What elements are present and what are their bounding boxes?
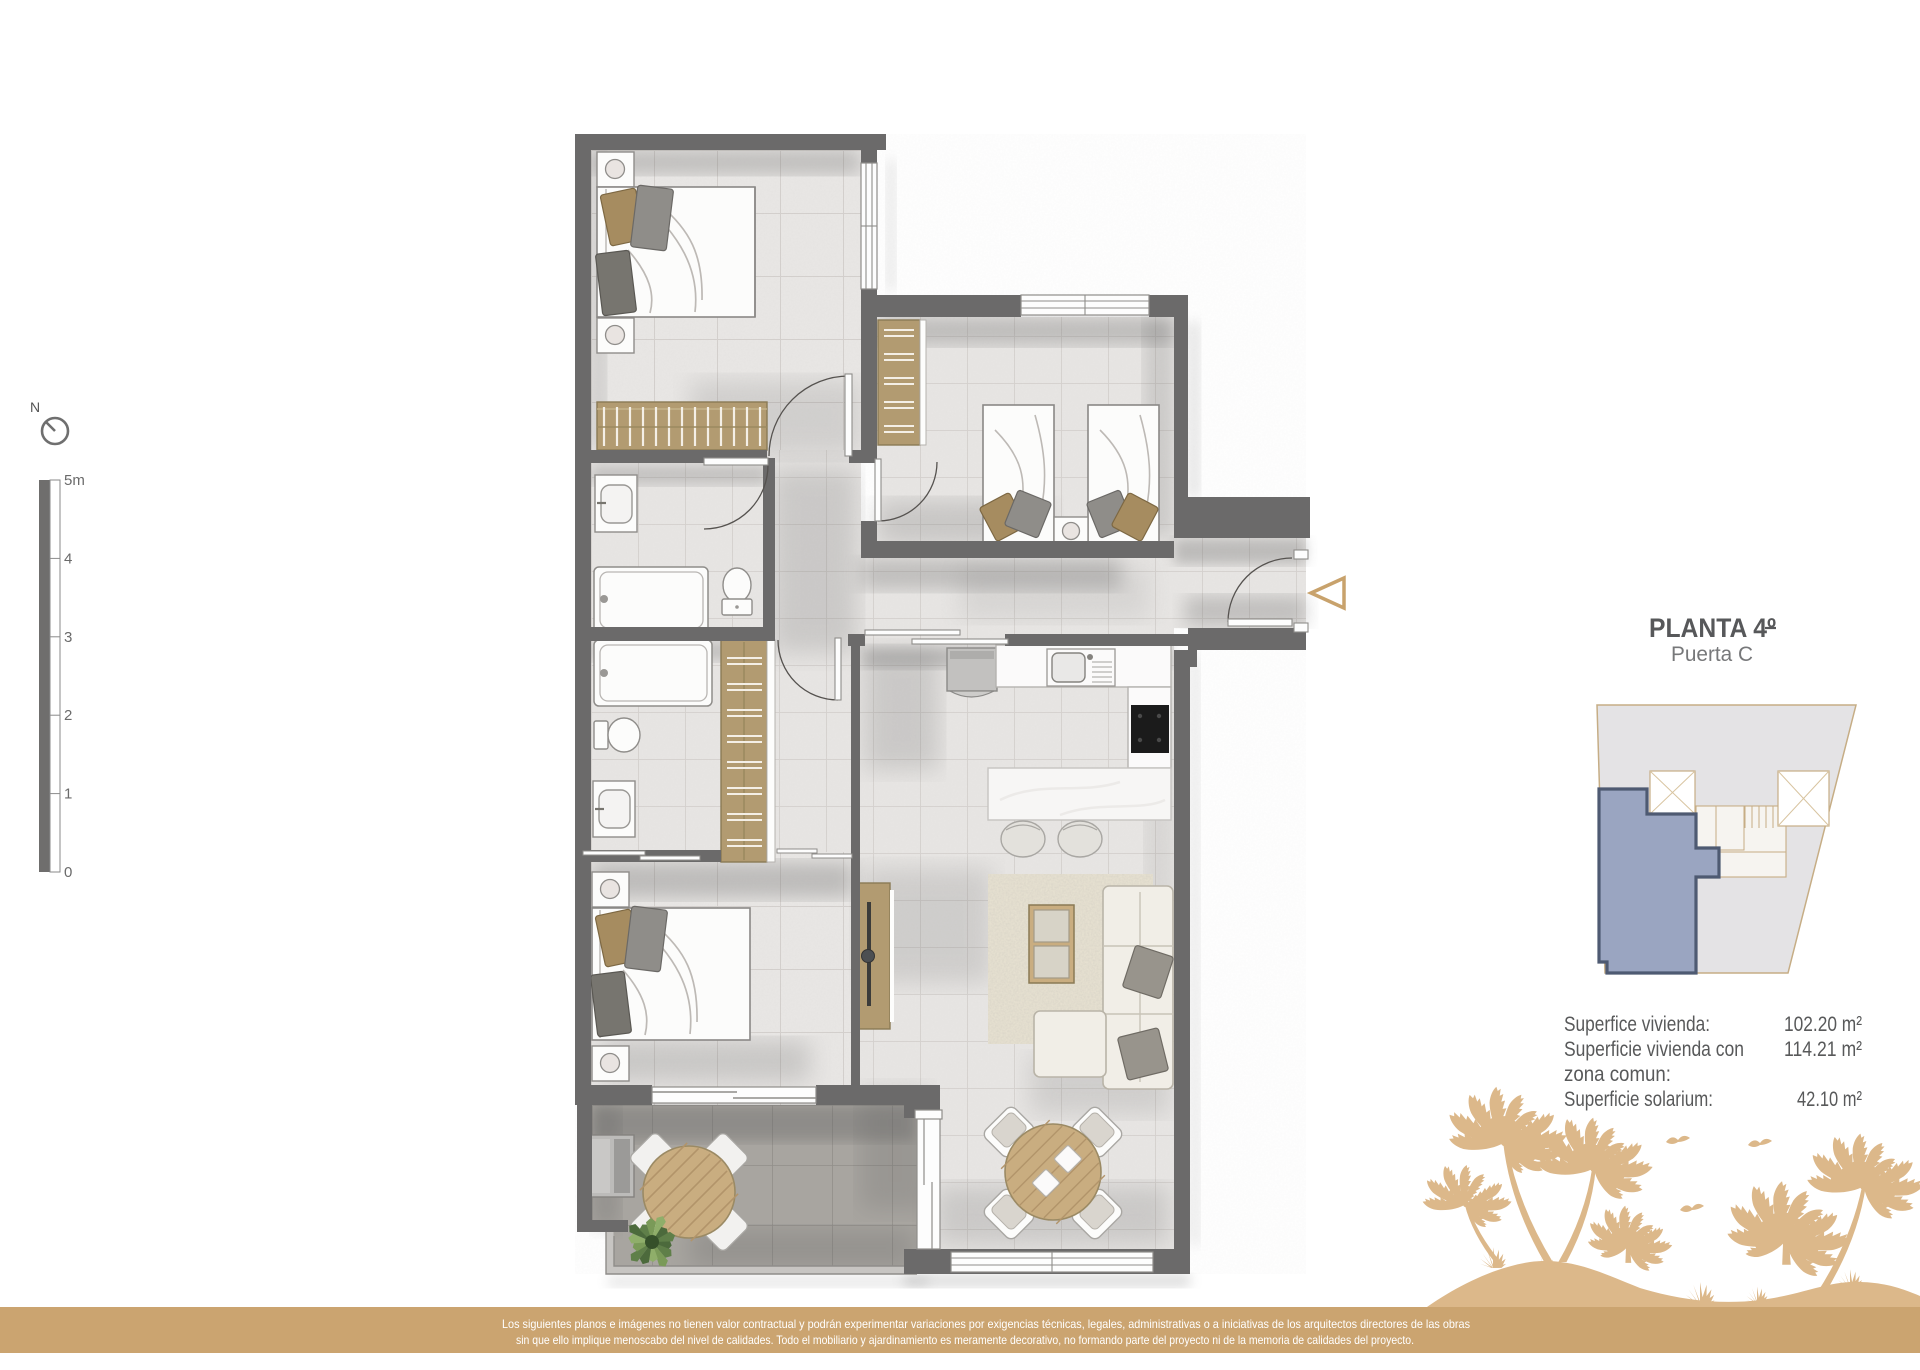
- svg-text:1: 1: [64, 786, 72, 803]
- svg-text:4: 4: [64, 550, 72, 567]
- svg-text:PLANTA 4º: PLANTA 4º: [1649, 613, 1776, 643]
- svg-text:0: 0: [64, 864, 72, 881]
- svg-text:zona comun:: zona comun:: [1564, 1063, 1671, 1086]
- svg-text:Superficie vivienda con: Superficie vivienda con: [1564, 1038, 1744, 1061]
- svg-text:Superfice vivienda:: Superfice vivienda:: [1564, 1013, 1710, 1036]
- svg-text:5m: 5m: [64, 472, 85, 489]
- svg-text:114.21 m²: 114.21 m²: [1784, 1038, 1862, 1061]
- svg-text:2: 2: [64, 707, 72, 724]
- svg-text:Puerta C: Puerta C: [1671, 643, 1753, 666]
- svg-text:sin que ello implique menoscab: sin que ello implique menoscabo del nive…: [516, 1333, 1414, 1347]
- svg-text:Superficie solarium:: Superficie solarium:: [1564, 1088, 1713, 1111]
- svg-text:N: N: [30, 399, 40, 415]
- svg-text:102.20 m²: 102.20 m²: [1784, 1013, 1862, 1036]
- svg-text:3: 3: [64, 629, 72, 646]
- svg-text:Los siguientes planos e imágen: Los siguientes planos e imágenes no tien…: [502, 1317, 1470, 1331]
- svg-text:42.10 m²: 42.10 m²: [1797, 1088, 1862, 1111]
